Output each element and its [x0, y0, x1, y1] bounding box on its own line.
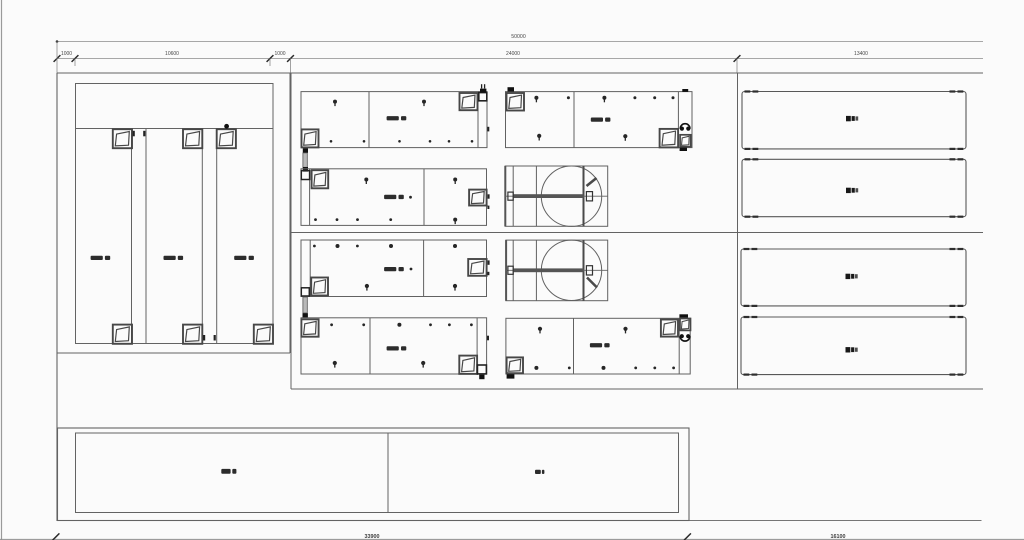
- svg-text:13400: 13400: [854, 51, 868, 57]
- svg-text:16100: 16100: [831, 534, 846, 540]
- svg-text:10600: 10600: [165, 51, 179, 57]
- svg-text:33900: 33900: [365, 534, 380, 540]
- svg-text:50000: 50000: [511, 34, 526, 40]
- svg-text:24000: 24000: [506, 51, 520, 57]
- svg-text:1000: 1000: [274, 51, 285, 57]
- svg-text:1000: 1000: [61, 51, 72, 57]
